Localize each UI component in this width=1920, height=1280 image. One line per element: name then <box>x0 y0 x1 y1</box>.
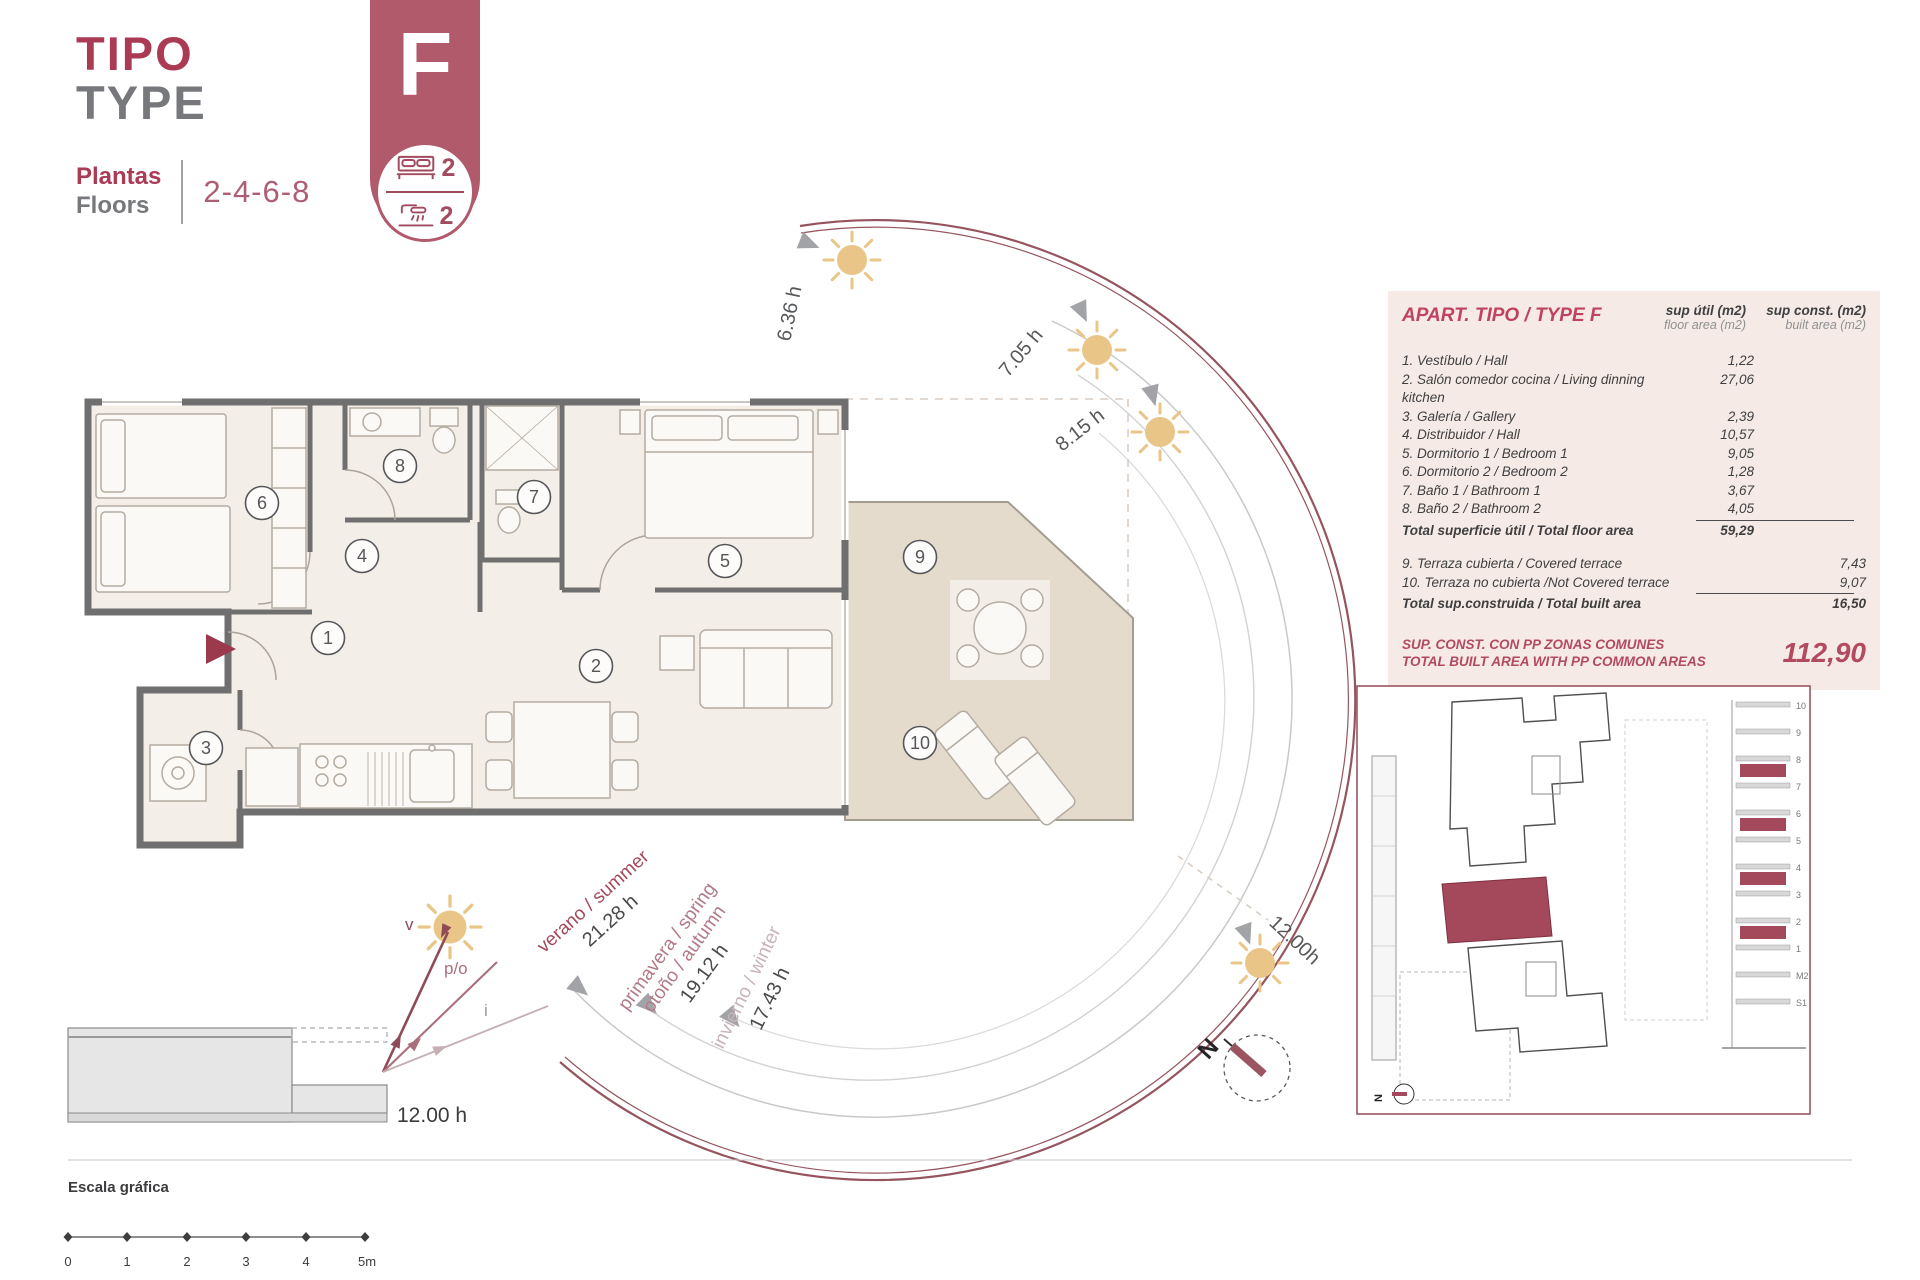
sun-icon <box>1069 322 1125 378</box>
arc-marker-triangle <box>1235 922 1259 948</box>
slab-section <box>68 1113 387 1122</box>
floor-label: 4 <box>1796 863 1801 873</box>
room-number-bubble: 8 <box>384 450 417 483</box>
scale-tick: 5m <box>358 1254 376 1269</box>
svg-text:9: 9 <box>915 547 925 567</box>
highlighted-floor <box>1740 764 1786 777</box>
floor-label: 10 <box>1796 701 1806 711</box>
svg-text:4: 4 <box>357 546 367 566</box>
scale-tick: 0 <box>64 1254 71 1269</box>
compass: N <box>1193 1034 1290 1101</box>
room-number-bubble: 5 <box>709 545 742 578</box>
terrace-chair <box>1021 589 1043 611</box>
winter-ray-label: i <box>484 1001 488 1020</box>
floor-label: 8 <box>1796 755 1801 765</box>
scale-tick: 4 <box>302 1254 309 1269</box>
svg-text:6: 6 <box>257 493 267 513</box>
room-number-bubble: 10 <box>904 727 937 760</box>
floor-label: S1 <box>1796 998 1807 1008</box>
room-number-bubble: 6 <box>246 487 279 520</box>
chair <box>486 712 512 742</box>
svg-text:2: 2 <box>591 656 601 676</box>
room-number-bubble: 9 <box>904 541 937 574</box>
inset-frame <box>1357 686 1810 1114</box>
scale-title: Escala gráfica <box>68 1179 170 1196</box>
highlighted-floor <box>1740 926 1786 939</box>
scale-tick: 2 <box>183 1254 190 1269</box>
room-number-bubble: 2 <box>580 650 613 683</box>
floor-label: 1 <box>1796 944 1801 954</box>
terrace-chair <box>957 645 979 667</box>
north-label: N <box>1373 1094 1385 1102</box>
svg-text:8: 8 <box>395 456 405 476</box>
floor-label: 7 <box>1796 782 1801 792</box>
toilet <box>430 408 458 426</box>
sun-icon <box>1132 404 1188 460</box>
hour-label-sunrise-spring: 7.05 h <box>995 324 1048 381</box>
room-number-bubble: 4 <box>346 540 379 573</box>
floor-label: 3 <box>1796 890 1801 900</box>
scale-tick: 3 <box>242 1254 249 1269</box>
bathroom-counter <box>350 408 420 436</box>
arc-marker-triangle <box>797 232 823 257</box>
floor-label: 6 <box>1796 809 1801 819</box>
floor-label: 9 <box>1796 728 1801 738</box>
chair <box>612 712 638 742</box>
scale-tick: 1 <box>123 1254 130 1269</box>
svg-text:10: 10 <box>910 733 930 753</box>
floor-label: M2 <box>1796 971 1809 981</box>
season-label-winter: invierno / winter 17.43 h <box>708 923 809 1064</box>
neighbor-building <box>1372 756 1396 1060</box>
scale-bar: Escala gráfica 0 1 2 3 4 5m <box>64 1160 1853 1269</box>
plan-sheet: TIPO TYPE Plantas Floors 2-4-6-8 F <box>0 0 1920 1280</box>
svg-text:7: 7 <box>529 487 539 507</box>
svg-text:1: 1 <box>323 628 333 648</box>
section-noon-label: 12.00 h <box>397 1104 467 1127</box>
sofa <box>700 630 832 708</box>
summer-ray-label: v <box>405 915 414 934</box>
floor-plan: 1 2 3 4 5 6 7 8 9 10 <box>88 402 1133 845</box>
fridge <box>246 748 298 806</box>
highlighted-unit <box>1442 877 1552 943</box>
north-label: N <box>1193 1034 1225 1065</box>
nightstand <box>620 410 640 434</box>
sun-icon <box>1232 935 1288 991</box>
spring-autumn-ray-label: p/o <box>444 959 468 978</box>
nightstand <box>818 410 838 434</box>
spring-autumn-ray <box>383 962 497 1072</box>
noon-guide-dashed <box>1178 856 1268 920</box>
svg-text:5: 5 <box>720 551 730 571</box>
terrace-table <box>974 602 1026 654</box>
dining-table <box>514 702 610 798</box>
side-table <box>660 636 694 670</box>
season-marker-triangle <box>566 975 594 1002</box>
hour-label-sunrise-winter: 8.15 h <box>1052 404 1109 456</box>
arc-marker-triangle <box>1070 299 1095 326</box>
site-plan-inset: 10 9 8 7 6 5 4 3 2 1 M2 S1 N <box>1357 686 1810 1114</box>
upper-floor-dashed <box>292 1028 387 1042</box>
sun-icon <box>824 232 880 288</box>
hour-label-sunrise-summer: 6.36 h <box>773 284 806 343</box>
section-sun-diagram: v p/o i 12.00 h <box>68 896 548 1127</box>
terrace-chair <box>957 589 979 611</box>
kitchen-sink <box>410 750 454 802</box>
svg-text:3: 3 <box>201 738 211 758</box>
terrace-chair <box>1021 645 1043 667</box>
highlighted-floor <box>1740 818 1786 831</box>
floor-label: 2 <box>1796 917 1801 927</box>
drawing-scene: 6.36 h 7.05 h 8.15 h 12.00h verano / sum… <box>0 0 1920 1280</box>
building-section <box>68 1028 292 1122</box>
floor-label: 5 <box>1796 836 1801 846</box>
highlighted-floor <box>1740 872 1786 885</box>
room-number-bubble: 7 <box>518 481 551 514</box>
chair <box>486 760 512 790</box>
chair <box>612 760 638 790</box>
room-number-bubble: 1 <box>312 622 345 655</box>
compass-needle <box>1232 1046 1264 1074</box>
terrace-section <box>292 1085 387 1113</box>
room-number-bubble: 3 <box>190 732 223 765</box>
